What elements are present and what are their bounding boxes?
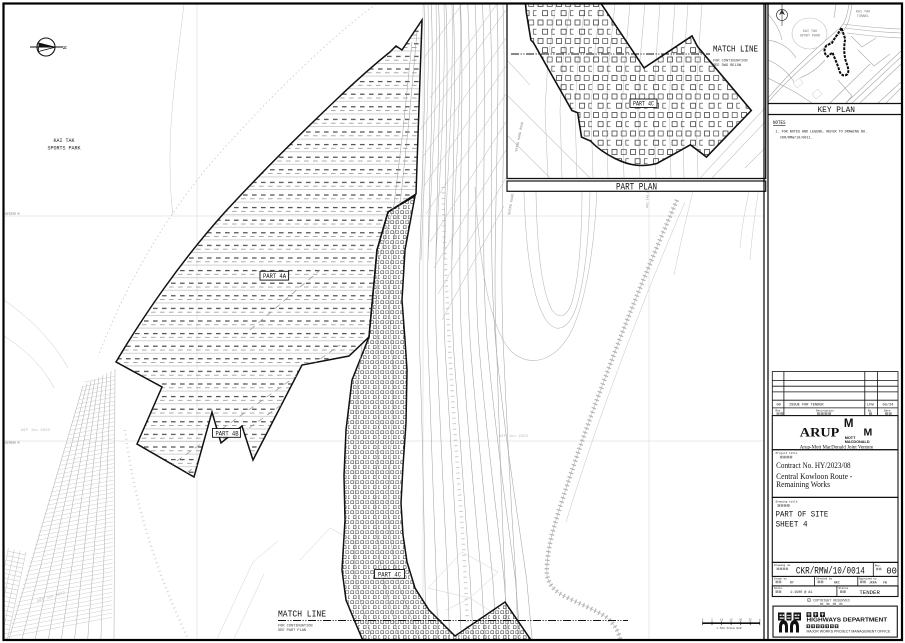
svg-text:KAI TAK: KAI TAK [53,138,74,144]
svg-text:00: 00 [886,567,897,577]
svg-text:KAI TAK: KAI TAK [856,11,871,15]
svg-text:823000 N: 823000 N [5,442,20,445]
svg-text:M: M [864,427,873,439]
svg-text:WIP Jun 2023: WIP Jun 2023 [21,429,50,433]
svg-text:PART 4A: PART 4A [263,273,286,280]
svg-text:WIP Jun 2023: WIP Jun 2023 [499,435,528,439]
svg-text:M: M [844,418,854,430]
svg-text:823250 N: 823250 N [5,213,20,216]
svg-text:PART 4C: PART 4C [633,101,654,108]
svg-text:COPYRIGHT RESERVED: COPYRIGHT RESERVED [813,599,850,603]
svg-text:10: 10 [720,618,724,621]
svg-text:15: 15 [730,618,734,621]
svg-text:Arup-Mott MacDonald Joint Vent: Arup-Mott MacDonald Joint Venture [800,444,874,450]
svg-text:PART 4C: PART 4C [378,571,401,578]
svg-text:PART 4B: PART 4B [216,430,239,437]
svg-text:AKC: AKC [834,580,840,584]
svg-text:Project title: Project title [776,451,798,455]
svg-text:PART PLAN: PART PLAN [616,182,657,193]
svg-text:KEY PLAN: KEY PLAN [818,105,856,115]
svg-text:RY: RY [790,580,794,584]
svg-text:Drawing no.: Drawing no. [774,563,792,567]
svg-text:TUNNEL: TUNNEL [857,15,869,19]
svg-text:FOR CONTINUATION: FOR CONTINUATION [713,60,748,64]
svg-text:MATCH LINE: MATCH LINE [713,45,758,55]
svg-text:JKKA: JKKA [869,580,877,584]
svg-text:00: 00 [777,403,781,407]
svg-text:MAJOR WORKS PROJECT MANAGEMENT: MAJOR WORKS PROJECT MANAGEMENT OFFICE [807,629,892,633]
svg-text:Contract No. HY/2023/08: Contract No. HY/2023/08 [776,461,851,470]
svg-text:Drawn by: Drawn by [774,576,787,580]
svg-text:03/24: 03/24 [883,402,894,407]
svg-text:SEE DWG BELOW: SEE DWG BELOW [713,64,742,68]
svg-text:1:500 SCALE BAR: 1:500 SCALE BAR [716,627,741,630]
svg-text:20: 20 [739,618,743,621]
svg-text:Drawing title: Drawing title [776,499,798,503]
svg-text:By: By [868,410,872,413]
svg-text:SPORTS PARK: SPORTS PARK [47,146,80,152]
svg-text:Description: Description [816,409,834,413]
svg-text:LFW: LFW [867,403,874,407]
svg-text:HIGHWAYS DEPARTMENT: HIGHWAYS DEPARTMENT [807,618,889,624]
svg-text:N: N [61,46,68,49]
svg-text:Date: Date [884,410,891,413]
svg-text:Remaining Works: Remaining Works [776,480,830,489]
svg-text:KAI TAK: KAI TAK [803,30,818,34]
svg-text:ARUP: ARUP [800,425,840,440]
svg-text:SEE PART PLAN: SEE PART PLAN [278,629,306,633]
svg-text:Status: Status [839,587,849,590]
svg-text:25: 25 [749,618,753,621]
svg-text:ISSUE FOR TENDER: ISSUE FOR TENDER [789,403,824,407]
svg-text:FW: FW [883,580,887,584]
svg-text:PART OF SITE: PART OF SITE [776,510,829,520]
svg-text:SHEET 4: SHEET 4 [776,520,808,530]
svg-text:SPORT PARK: SPORT PARK [800,35,821,39]
svg-text:Rev.: Rev. [875,564,881,567]
svg-text:Rev.: Rev. [776,410,782,413]
svg-text:MATCH LINE: MATCH LINE [278,609,326,620]
svg-text:Scale: Scale [774,586,782,590]
svg-text:TENDER: TENDER [859,589,880,596]
svg-text:CKR/RMW/10/0011.: CKR/RMW/10/0011. [780,136,813,141]
svg-text:1. FOR NOTES AND LEGEND, REFER: 1. FOR NOTES AND LEGEND, REFER TO DRAWIN… [776,131,868,135]
svg-text:1:1500 @ A1: 1:1500 @ A1 [790,590,812,595]
svg-text:Checked by: Checked by [816,576,833,580]
svg-text:CKR/RMW/10/0014: CKR/RMW/10/0014 [796,566,865,577]
svg-text:FOR CONTINUATION: FOR CONTINUATION [278,625,313,629]
